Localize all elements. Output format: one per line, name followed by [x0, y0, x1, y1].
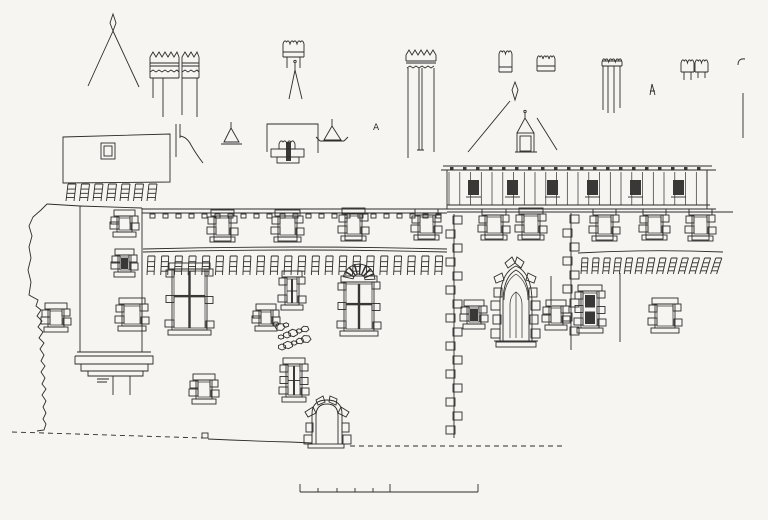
quoin-stone [115, 316, 124, 323]
wall-corner-joint [446, 214, 462, 438]
sill-stone [692, 236, 709, 240]
window-frame [485, 215, 503, 235]
gothic-window [491, 257, 540, 347]
cross-window-center [337, 264, 381, 336]
corbel [229, 256, 237, 275]
transom [174, 295, 205, 297]
quoin-stone [372, 304, 380, 311]
quoin-stone [538, 214, 546, 221]
lintel-stone [45, 303, 67, 309]
rafter-end [476, 167, 480, 170]
gothic-quoin [530, 315, 538, 324]
dentil [319, 214, 324, 218]
lintel-stone [578, 285, 602, 291]
quoin-stone [685, 226, 694, 233]
mullion [188, 271, 190, 328]
roof-slope-right [537, 118, 557, 150]
window-frame [655, 304, 675, 328]
gothic-quoin [491, 301, 500, 310]
quoin-stone [210, 380, 218, 387]
mullion [358, 284, 360, 329]
gallery-opening [468, 180, 479, 195]
corbel [678, 258, 688, 274]
quoin-stone [597, 307, 605, 314]
window-glass [121, 258, 128, 269]
architectural-elevation-sheet: A [0, 0, 768, 520]
gothic-quoin [529, 288, 537, 297]
stacked-window-2 [279, 358, 309, 402]
window-frame-inner [261, 312, 271, 324]
rafter-end [450, 167, 454, 170]
window-glass [585, 295, 595, 308]
quoin-stone [338, 283, 346, 290]
corbel [80, 184, 90, 201]
attic-window-2 [271, 210, 304, 242]
gallery-opening [507, 180, 518, 195]
quoin-stone [41, 317, 50, 324]
gallery-opening [673, 180, 684, 195]
annotation-label: A [373, 123, 380, 133]
corbel [270, 256, 278, 275]
quoin-stone [372, 282, 380, 289]
window-frame-inner [216, 218, 229, 235]
ground-solid [208, 439, 312, 443]
rafter-end [645, 167, 649, 170]
small-window-e [648, 298, 682, 333]
ground-line [12, 432, 562, 446]
quoin-stone [639, 225, 648, 232]
right-attic-window-4 [639, 209, 670, 240]
stacked-window [278, 271, 306, 310]
quoin-stone [190, 381, 198, 388]
corbel [407, 256, 415, 275]
lintel-stone [283, 358, 305, 364]
window-frame-inner [347, 216, 360, 234]
quoin-stone [590, 216, 598, 223]
gothic-tracery [504, 274, 528, 338]
left-wall [28, 204, 80, 431]
door-arch-inner [316, 404, 338, 444]
crown-chimney-b [499, 51, 512, 72]
right-attic-window-5 [685, 209, 716, 241]
corbel [243, 256, 251, 275]
corbel [700, 258, 711, 274]
sill-stone [522, 235, 540, 239]
corbel [657, 258, 667, 274]
quoin-stone [116, 305, 124, 312]
gallery-opening [547, 180, 558, 195]
quoin-stone [575, 292, 583, 299]
arched-door [304, 396, 351, 448]
sill-stone [168, 330, 211, 335]
corbel [603, 258, 611, 274]
sill-stone [114, 272, 135, 277]
sill-stone [577, 328, 603, 333]
spire-roof-outline [88, 31, 139, 87]
lintel-stone [546, 300, 566, 306]
gallery-bottom-rails [445, 205, 733, 212]
quoin-stone [300, 364, 308, 371]
corbel [120, 184, 130, 201]
rafter-end [580, 167, 584, 170]
lintel-stone [115, 249, 134, 255]
quoin-stone [516, 215, 524, 222]
rafter-end [593, 167, 597, 170]
quoin-stone [411, 225, 420, 232]
cross-window-west [165, 263, 214, 335]
rubble-masonry-patch [273, 322, 311, 350]
corbel [147, 256, 155, 275]
dentil [163, 214, 168, 218]
corbel [421, 256, 429, 275]
crown-chimney-a [283, 41, 304, 68]
gothic-arch-stone [494, 257, 536, 283]
quoin-stone [478, 225, 487, 232]
quoin-stone [479, 306, 487, 313]
window-frame [646, 215, 663, 235]
quoin-stone [278, 295, 287, 302]
corbel [202, 256, 210, 275]
rafter-end [632, 167, 636, 170]
crown-chimney-c [537, 56, 555, 71]
rafter-end [541, 167, 545, 170]
crown-chimney-d1 [681, 60, 694, 80]
sill-stone [340, 331, 378, 336]
window-frame [278, 216, 297, 237]
quoin-stone [140, 304, 148, 311]
corbel [107, 184, 117, 201]
crown-outline [681, 60, 694, 80]
quoin-stone [279, 387, 288, 394]
scale-bar [300, 484, 478, 492]
window-frame-inner [124, 306, 140, 324]
sill-stone [192, 399, 216, 404]
quoin-stone [300, 378, 308, 385]
quoin-stone [460, 314, 469, 321]
rafter-end [619, 167, 623, 170]
rafter-end [515, 167, 519, 170]
quoin-stone [130, 216, 138, 223]
small-window-c [460, 300, 488, 329]
hook-mark [738, 59, 745, 65]
gothic-sill-stone [496, 342, 536, 347]
window-frame [345, 214, 362, 236]
corbel [689, 258, 700, 274]
window-frame [692, 215, 709, 236]
sill-stone [651, 328, 679, 333]
window-frame-inner [551, 308, 561, 323]
sill-stone [596, 236, 613, 240]
quoin-stone [337, 321, 346, 328]
gallery-opening [630, 180, 641, 195]
quoin-stone [649, 305, 657, 312]
corbel [284, 256, 292, 275]
dormer-finial-knob [524, 110, 526, 112]
roof-slope-left [468, 101, 510, 152]
quoin-stone [661, 215, 669, 222]
small-spire-knob [294, 60, 296, 62]
lintel-stone [256, 304, 276, 310]
rubble-stone [283, 323, 288, 327]
corbel [311, 256, 319, 275]
window-frame-inner [694, 217, 707, 234]
ridge-finial-small [650, 84, 655, 95]
rafter-end [463, 167, 467, 170]
window-glass [470, 309, 478, 321]
window-frame-inner [487, 217, 501, 233]
crown-chimney-d2 [695, 60, 708, 78]
crown-outline [283, 41, 304, 68]
small-window-a [252, 304, 280, 331]
dentil [332, 214, 337, 218]
window-frame-inner [648, 217, 661, 233]
chimney-stack-2 [182, 52, 199, 117]
great-chimney [406, 50, 436, 158]
quoin-stone [111, 217, 119, 224]
tower-lower-window [115, 298, 149, 331]
corbel [325, 256, 333, 275]
corbel [435, 256, 443, 275]
rafter-end [528, 167, 532, 170]
roof-apex-finial [512, 82, 518, 100]
tower-cap-window [101, 143, 115, 159]
rafter-end [606, 167, 610, 170]
string-course-left [143, 247, 447, 252]
quoin-stone [686, 216, 694, 223]
right-attic-window-2 [515, 208, 547, 240]
quoin-stone [271, 227, 280, 234]
window-frame-inner [280, 218, 295, 235]
crown-outline [537, 56, 555, 71]
crown-outline [602, 59, 622, 113]
quoin-stone [611, 215, 619, 222]
quoin-stone [515, 225, 524, 232]
window-frame-inner [420, 217, 433, 233]
window-frame-inner [198, 382, 210, 397]
quoin-stone [542, 315, 551, 322]
tower [63, 134, 170, 395]
quoin-stone [597, 291, 605, 298]
quoin-stone [574, 318, 583, 325]
quoin-stone [338, 303, 346, 310]
roofline-fragments [88, 14, 745, 163]
door-quoin [342, 423, 349, 432]
corbel [147, 184, 157, 201]
elevation-drawing: A [0, 0, 768, 520]
corbel [711, 258, 722, 274]
timber-gallery [441, 166, 733, 212]
tower-cap-window-inner [104, 146, 112, 156]
sill-stone [485, 235, 503, 239]
dentil [371, 214, 376, 218]
window-frame-inner [50, 311, 62, 325]
quoin-stone [295, 216, 303, 223]
sill-stone [281, 305, 303, 310]
rafter-end [554, 167, 558, 170]
gallery-end-posts [447, 170, 707, 209]
dentil [306, 214, 311, 218]
sill-stone [113, 232, 136, 237]
tall-window [574, 285, 606, 333]
quoin-stone [62, 309, 70, 316]
small-window-b [189, 374, 219, 404]
crenellated-chimney-tops [279, 41, 708, 149]
dentil [397, 214, 402, 218]
dentil [384, 214, 389, 218]
crown-outline [695, 60, 708, 78]
quoin-stone [129, 255, 137, 262]
corbel [635, 258, 644, 274]
corbel [161, 256, 169, 275]
window-frame [522, 214, 540, 235]
dentil [189, 214, 194, 218]
tower-mid-window [111, 249, 138, 277]
facade-left [142, 209, 447, 252]
sill-stone [214, 237, 231, 241]
machicolation-corbels [66, 184, 722, 275]
lintel-stone [652, 298, 678, 304]
ground-stone [202, 433, 208, 438]
corbel [93, 184, 103, 201]
door-sill [308, 444, 344, 448]
corbel [624, 258, 632, 274]
quoin-stone [253, 311, 261, 318]
sill-stone [345, 236, 362, 240]
gallery-top-rails [441, 166, 716, 170]
corbel [613, 258, 621, 274]
left-wall-top [47, 204, 80, 206]
rubble-stone [301, 326, 309, 332]
sill-stone [646, 235, 663, 239]
window-frame [596, 215, 613, 236]
right-machicolation [581, 258, 722, 274]
gallery-opening [587, 180, 598, 195]
quoin-stone [412, 216, 420, 223]
quoin-stone [166, 296, 174, 303]
door-arch-outer [312, 400, 342, 444]
left-machicolation [147, 256, 443, 275]
quoin-stone [339, 215, 347, 222]
sill-stone [545, 325, 567, 330]
dentil [176, 214, 181, 218]
left-wall-jagged-edge [28, 204, 47, 431]
right-attic-window-1 [478, 209, 510, 240]
dentil [202, 214, 207, 218]
door-quoin [343, 435, 351, 444]
corbel [394, 256, 402, 275]
quoin-stone [501, 215, 509, 222]
corbel [646, 258, 655, 274]
rafter-end [671, 167, 675, 170]
tower-cap [63, 134, 170, 183]
rafter-end [502, 167, 506, 170]
window-frame-inner [524, 216, 538, 233]
quoin-stone [673, 304, 681, 311]
quoin-stone [433, 215, 441, 222]
quoin-stone [272, 217, 280, 224]
corbel [581, 258, 588, 274]
corbel [134, 184, 144, 201]
gothic-quoin [491, 329, 500, 338]
quoin-stone [338, 226, 347, 233]
quoin-stone [280, 365, 288, 372]
quoin-stone [271, 310, 279, 317]
quoin-stone [279, 278, 287, 285]
quoined-wall-joints [446, 213, 579, 438]
quoin-stone [280, 377, 288, 384]
sill-stone [282, 397, 306, 402]
lintel-stone [282, 271, 302, 277]
quoin-stone [165, 320, 174, 327]
small-spire [289, 63, 302, 99]
stair-turret-roof [176, 124, 203, 163]
tower-upper-window [110, 210, 139, 237]
corbel [216, 256, 224, 275]
chimney-stack-1 [150, 52, 179, 117]
right-attic-window-3 [589, 209, 620, 241]
quoin-stone [589, 226, 598, 233]
quoin-stone [648, 318, 657, 325]
quoin-stone [42, 310, 50, 317]
quoin-stone [207, 227, 216, 234]
three-flue-crown [602, 59, 622, 113]
dentil [150, 214, 155, 218]
dentil [241, 214, 246, 218]
dentil [267, 214, 272, 218]
left-wall-window [41, 303, 71, 332]
rafter-end [489, 167, 493, 170]
quoin-stone [640, 216, 648, 223]
quoin-stone [561, 306, 569, 313]
window-frame [214, 216, 231, 237]
rubble-stone [278, 335, 283, 339]
sill-stone [278, 237, 297, 241]
voussoir-stone [355, 264, 360, 274]
window-frame-inner [657, 306, 673, 326]
rafter-end [697, 167, 701, 170]
dormer-window [520, 136, 531, 151]
quoin-stone [205, 297, 213, 304]
window-frame-inner [598, 217, 611, 234]
rafter-end [658, 167, 662, 170]
transom [346, 303, 372, 305]
quoin-stone [543, 307, 551, 314]
tower-machicolation [66, 184, 157, 201]
gable-finial-left [221, 122, 242, 144]
corbel [257, 256, 265, 275]
lintel-stone [114, 210, 135, 216]
corbel [174, 256, 182, 275]
rafter-end [684, 167, 688, 170]
lintel-stone [119, 298, 145, 304]
sill-stone [418, 235, 435, 239]
quoin-stone [360, 214, 368, 221]
crown-outline [499, 51, 512, 72]
window-frame-inner [119, 218, 130, 230]
corbel [667, 258, 677, 274]
sill-stone [255, 326, 277, 331]
sill-stone [44, 327, 68, 332]
corbel [66, 184, 76, 201]
window-glass [585, 312, 595, 325]
rafter-end [567, 167, 571, 170]
quoin-stone [189, 389, 198, 396]
lintel-stone [464, 300, 484, 306]
tower-base-moldings [75, 352, 153, 395]
quoin-stone [297, 277, 305, 284]
window-frame [122, 304, 142, 326]
tower-body [80, 206, 142, 352]
